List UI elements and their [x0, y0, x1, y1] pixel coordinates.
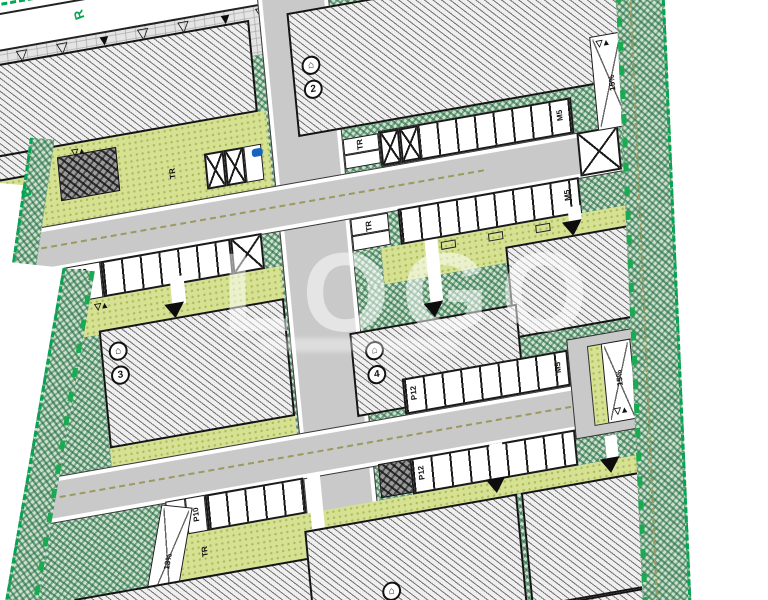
parking-count-label: M5	[554, 361, 563, 373]
parking-stall-label: P10	[192, 507, 201, 523]
garage-entry-icon: ▽▲	[614, 405, 628, 416]
crossed-stall	[399, 125, 422, 162]
building-number: 3	[117, 369, 124, 381]
trash-room-label: TR	[201, 546, 210, 558]
parking-count-label: M5	[556, 109, 565, 121]
ramp-slope-label: 15%	[608, 74, 617, 91]
entrance-icon: ⌂	[115, 345, 122, 357]
entrance-icon: ⌂	[307, 59, 314, 71]
watermark-subtitle	[260, 338, 458, 352]
planting-patch-east	[354, 248, 385, 289]
turning-head	[576, 125, 622, 176]
trash-room-label: TR	[169, 167, 178, 179]
building-number: 2	[310, 83, 317, 95]
building-number: 4	[374, 369, 381, 381]
parking-count-label: M5	[563, 189, 572, 201]
entrance-walkway	[605, 434, 619, 458]
crossed-stall	[230, 233, 265, 275]
ramp-slope-label: 13%	[163, 553, 174, 570]
entrance-icon: ⌂	[388, 585, 395, 597]
site-plan-canvas: R ▽ ▼ ▽ ▽ ▼ ▽ ▽ ▼ ▽ TR ▽▲	[0, 0, 768, 600]
ramp-slope-label: 15%	[615, 369, 624, 386]
trash-room-label: TR	[356, 138, 365, 150]
rotated-plan: R ▽ ▼ ▽ ▽ ▼ ▽ ▽ ▼ ▽ TR ▽▲	[0, 0, 768, 600]
parking-stall-label: P12	[417, 465, 426, 481]
parking-stall-label: P12	[410, 385, 419, 401]
trash-room-label: TR	[365, 220, 374, 232]
